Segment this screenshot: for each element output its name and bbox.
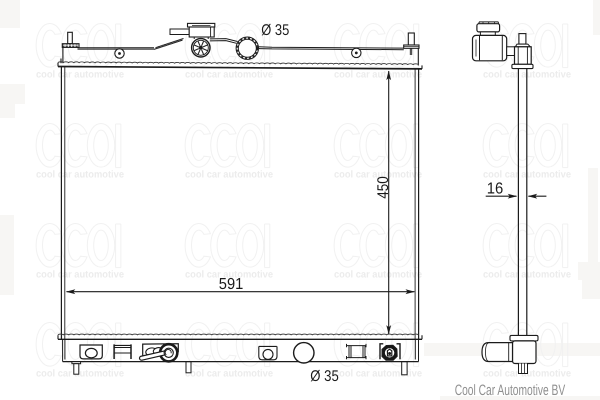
svg-text:Ø 35: Ø 35 (310, 368, 339, 385)
svg-text:Cool Car Automotive BV: Cool Car Automotive BV (455, 382, 566, 399)
svg-text:591: 591 (219, 276, 244, 293)
svg-text:Ø 35: Ø 35 (261, 22, 289, 39)
svg-text:450: 450 (375, 176, 392, 199)
svg-text:16: 16 (487, 181, 504, 198)
